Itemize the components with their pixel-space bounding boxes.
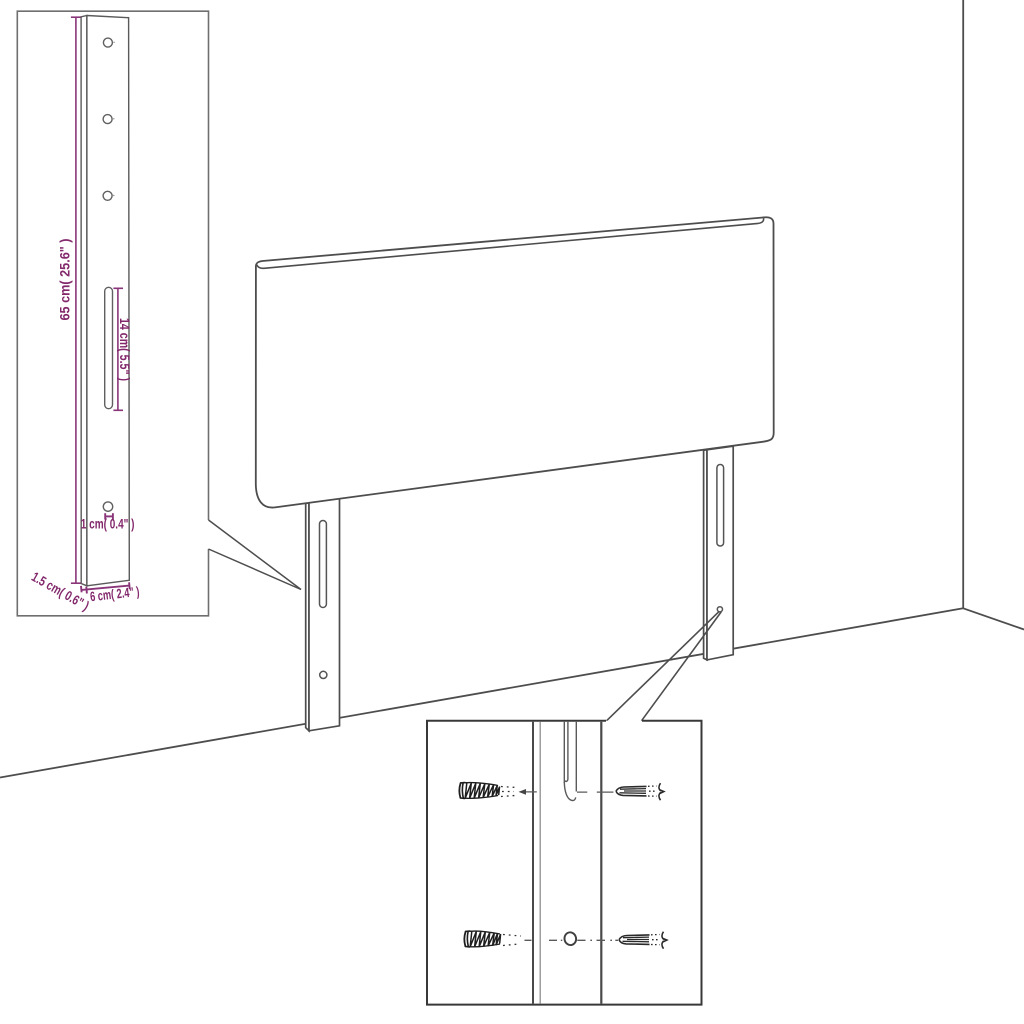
- svg-text:1 cm( 0.4" ): 1 cm( 0.4" ): [81, 517, 135, 532]
- svg-text:65 cm( 25.6" ): 65 cm( 25.6" ): [58, 239, 73, 321]
- svg-text:14 cm( 5.5" ): 14 cm( 5.5" ): [117, 318, 132, 381]
